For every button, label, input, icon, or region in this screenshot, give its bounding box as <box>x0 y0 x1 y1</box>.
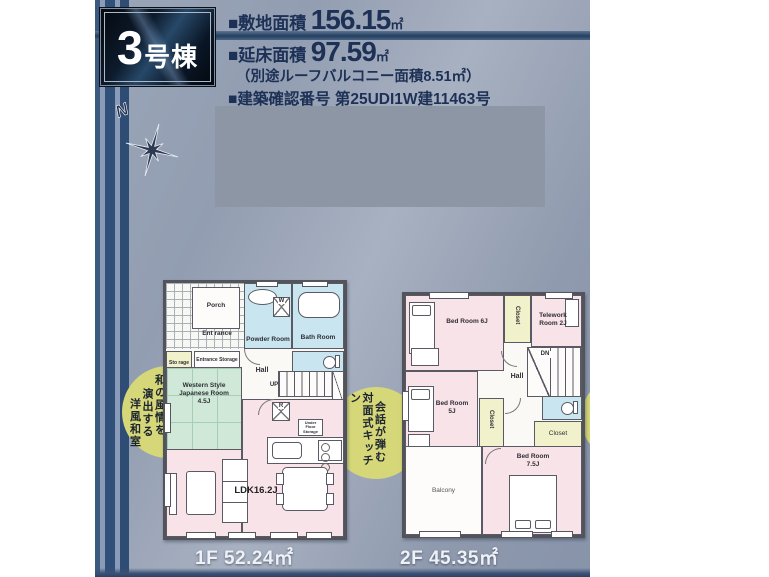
room-porch: Porch <box>192 287 240 329</box>
ldk-label: LDK16.2J <box>221 485 291 496</box>
room-japanese: Western Style Japanese Room 4.5J <box>166 367 242 451</box>
washer-icon: W <box>273 297 290 317</box>
room-bath: Bath Room <box>292 283 344 349</box>
window <box>402 391 409 421</box>
window <box>228 532 256 539</box>
unit-suffix: 号棟 <box>144 37 198 74</box>
desk-icon <box>411 348 439 366</box>
room-closet-3: Closet <box>534 421 582 449</box>
window <box>164 473 171 507</box>
compass-icon: N <box>110 98 194 192</box>
bed-icon <box>509 475 557 533</box>
stairs-down <box>527 347 582 397</box>
left-stripe-band <box>95 0 129 577</box>
floor1-area-label: 1F 52.24㎡ <box>195 543 294 570</box>
stairs-up-label: UP <box>266 382 282 389</box>
kitchen-counter <box>267 437 344 464</box>
floor-area-row: ■延床面積 97.59㎡ <box>228 36 590 68</box>
compass-star-icon <box>126 124 178 176</box>
fridge-icon: R <box>272 402 290 421</box>
window <box>302 281 328 287</box>
compass-north-label: N <box>113 99 132 121</box>
site-area-row: ■敷地面積 156.15㎡ <box>228 4 590 36</box>
window <box>551 531 573 538</box>
unit-number: 3 <box>117 24 143 71</box>
bottom-gradient-band <box>95 568 590 577</box>
room-entrance-label: Ent rance <box>196 330 238 338</box>
hall-label-2f: Hall <box>507 373 527 381</box>
window <box>186 532 216 539</box>
room-closet-2: Closet <box>479 398 504 448</box>
site-area-label: ■敷地面積 <box>228 14 306 33</box>
room-bed5: Bed Room 5J <box>405 371 478 448</box>
flyer-content: 3 号棟 ■敷地面積 156.15㎡ ■延床面積 97.59㎡ （別途ルーフバル… <box>95 0 590 577</box>
unit-number-badge: 3 号棟 <box>100 8 215 86</box>
window <box>164 403 171 433</box>
room-bed6: Bed Room 6J <box>405 295 504 371</box>
site-area-unit: ㎡ <box>390 17 403 32</box>
chair <box>326 493 334 505</box>
floor-area-unit: ㎡ <box>376 49 389 64</box>
site-area-value: 156.15 <box>311 4 391 35</box>
stairs-down-label: DN <box>537 351 553 358</box>
door-arc <box>244 349 260 365</box>
window <box>501 531 533 538</box>
toilet-icon <box>561 401 578 414</box>
room-powder: W Powder Room <box>244 283 292 349</box>
bed-icon <box>409 302 435 354</box>
callout-right-line1: 会話が弾む <box>373 401 386 479</box>
floor2-area-label: 2F 45.35㎡ <box>400 543 499 570</box>
stove-icon <box>318 440 342 461</box>
chair <box>326 473 334 485</box>
room-toilet-2f <box>542 396 582 420</box>
hall-label-1f: Hall <box>250 367 274 375</box>
window <box>306 532 332 539</box>
callout-left-line2: 演出する <box>141 388 154 456</box>
floor-area-value: 97.59 <box>311 36 376 67</box>
window <box>270 532 298 539</box>
floor-plan-2f: Bed Room 6J Closet Telework Room 2J DN H… <box>402 292 585 538</box>
room-telework: Telework Room 2J <box>531 295 582 347</box>
callout-left-line3: 洋風和室 <box>128 398 141 456</box>
redacted-text-block <box>215 106 545 207</box>
room-closet-1: Closet <box>504 295 531 343</box>
door-arc <box>505 398 521 414</box>
chair <box>276 473 284 485</box>
room-balcony: Balcony <box>405 446 482 535</box>
kitchen-sink-icon <box>272 442 302 459</box>
under-floor-storage: Under Floor Storage <box>298 419 323 436</box>
window <box>256 281 278 287</box>
sofa <box>186 471 216 515</box>
roof-balcony-note: （別途ルーフバルコニー面積8.51㎡） <box>228 68 590 87</box>
room-toilet-1f <box>292 351 344 373</box>
stairs-up <box>278 371 334 397</box>
toilet-icon <box>323 355 340 368</box>
floor-plan-1f: Porch Ent rance W Powder Room Bath Room … <box>163 280 347 540</box>
window <box>419 531 461 538</box>
callout-right-line2: 対面式キッチン <box>348 392 373 479</box>
bathtub-icon <box>298 292 340 318</box>
bed-icon <box>408 386 434 432</box>
floor-area-label: ■延床面積 <box>228 46 306 65</box>
window <box>545 292 573 299</box>
window <box>429 292 469 299</box>
